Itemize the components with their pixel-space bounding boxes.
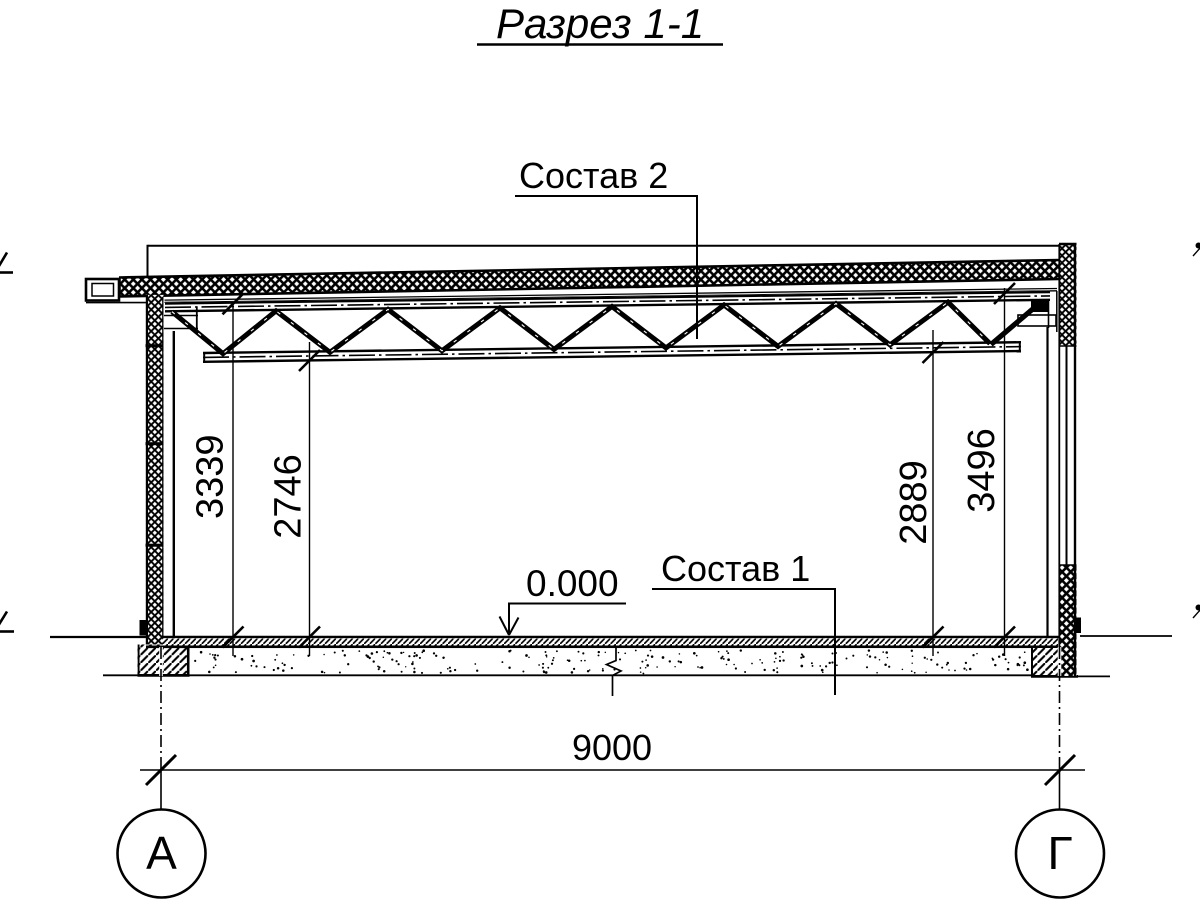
svg-text:Разрез 1-1: Разрез 1-1	[496, 0, 704, 47]
svg-text:3339: 3339	[190, 434, 232, 519]
svg-text:А: А	[146, 827, 177, 879]
svg-text:3496: 3496	[961, 428, 1003, 513]
svg-text:Состав 1: Состав 1	[661, 548, 810, 589]
svg-text:Г: Г	[1048, 827, 1073, 879]
svg-text:2746: 2746	[268, 454, 310, 539]
svg-text:0.000: 0.000	[526, 563, 619, 604]
svg-text:9000: 9000	[572, 727, 652, 768]
svg-text:Состав 2: Состав 2	[519, 155, 668, 196]
svg-text:2889: 2889	[893, 460, 935, 545]
